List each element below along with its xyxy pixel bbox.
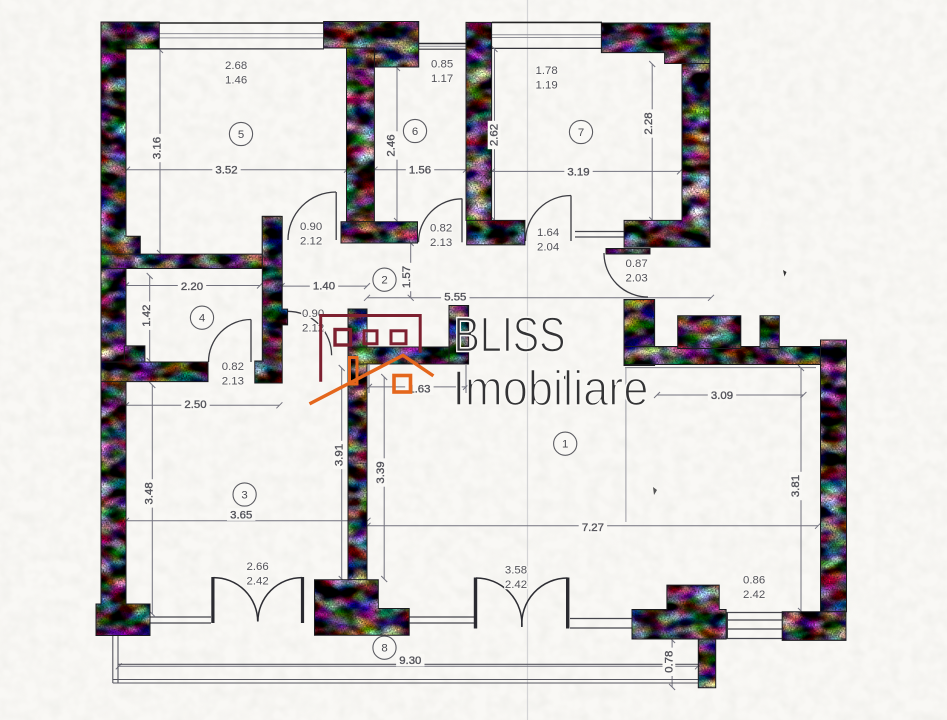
svg-text:2.20: 2.20 <box>181 281 203 293</box>
svg-text:1.46: 1.46 <box>225 75 247 87</box>
svg-text:1.78: 1.78 <box>536 65 558 77</box>
svg-text:Imobiliare: Imobiliare <box>453 361 649 416</box>
svg-text:2: 2 <box>381 275 387 287</box>
svg-text:2.42: 2.42 <box>743 589 765 601</box>
svg-text:0.82: 0.82 <box>430 223 452 235</box>
svg-text:0.85: 0.85 <box>431 59 453 71</box>
svg-text:5.55: 5.55 <box>444 292 466 304</box>
svg-text:3.58: 3.58 <box>505 565 527 577</box>
svg-text:4: 4 <box>199 313 205 325</box>
svg-text:BLISS: BLISS <box>454 309 566 363</box>
svg-text:1.19: 1.19 <box>536 80 558 92</box>
svg-text:1.57: 1.57 <box>401 266 413 288</box>
svg-text:6: 6 <box>412 126 418 138</box>
svg-text:1.64: 1.64 <box>537 227 559 239</box>
svg-text:1.17: 1.17 <box>431 73 453 85</box>
svg-text:2.28: 2.28 <box>643 112 655 134</box>
svg-text:1: 1 <box>562 439 568 451</box>
svg-text:0.86: 0.86 <box>743 575 765 587</box>
svg-text:2.50: 2.50 <box>184 399 206 411</box>
svg-text:3.48: 3.48 <box>144 482 156 504</box>
svg-text:2.12: 2.12 <box>300 236 322 248</box>
svg-text:2.13: 2.13 <box>430 237 452 249</box>
svg-text:0.82: 0.82 <box>222 361 244 373</box>
svg-text:7.27: 7.27 <box>582 522 604 534</box>
svg-text:3.19: 3.19 <box>567 167 589 179</box>
svg-text:5: 5 <box>238 129 244 141</box>
svg-text:3.52: 3.52 <box>215 165 237 177</box>
svg-text:0.87: 0.87 <box>626 258 648 270</box>
svg-text:2.13: 2.13 <box>222 376 244 388</box>
svg-text:3.91: 3.91 <box>334 444 346 466</box>
svg-text:3.65: 3.65 <box>230 510 252 522</box>
svg-text:3.39: 3.39 <box>375 461 387 483</box>
svg-text:1.56: 1.56 <box>409 165 431 177</box>
svg-text:2.03: 2.03 <box>626 273 648 285</box>
svg-text:7: 7 <box>578 127 584 139</box>
svg-text:3.09: 3.09 <box>711 390 733 402</box>
svg-text:0.78: 0.78 <box>663 651 675 673</box>
svg-text:2.68: 2.68 <box>225 60 247 72</box>
svg-text:2.42: 2.42 <box>247 576 269 588</box>
svg-text:2.66: 2.66 <box>247 561 269 573</box>
svg-text:2.62: 2.62 <box>489 124 501 146</box>
svg-text:0.90: 0.90 <box>300 221 322 233</box>
svg-text:3.81: 3.81 <box>790 475 802 497</box>
svg-text:3.16: 3.16 <box>152 137 164 159</box>
svg-text:9.30: 9.30 <box>399 655 421 667</box>
svg-text:3: 3 <box>241 490 247 502</box>
svg-text:2.46: 2.46 <box>386 134 398 156</box>
svg-text:1.40: 1.40 <box>313 281 335 293</box>
svg-text:1.42: 1.42 <box>141 305 153 327</box>
svg-text:8: 8 <box>381 643 387 655</box>
svg-text:2.04: 2.04 <box>537 242 559 254</box>
svg-text:2.42: 2.42 <box>505 579 527 591</box>
